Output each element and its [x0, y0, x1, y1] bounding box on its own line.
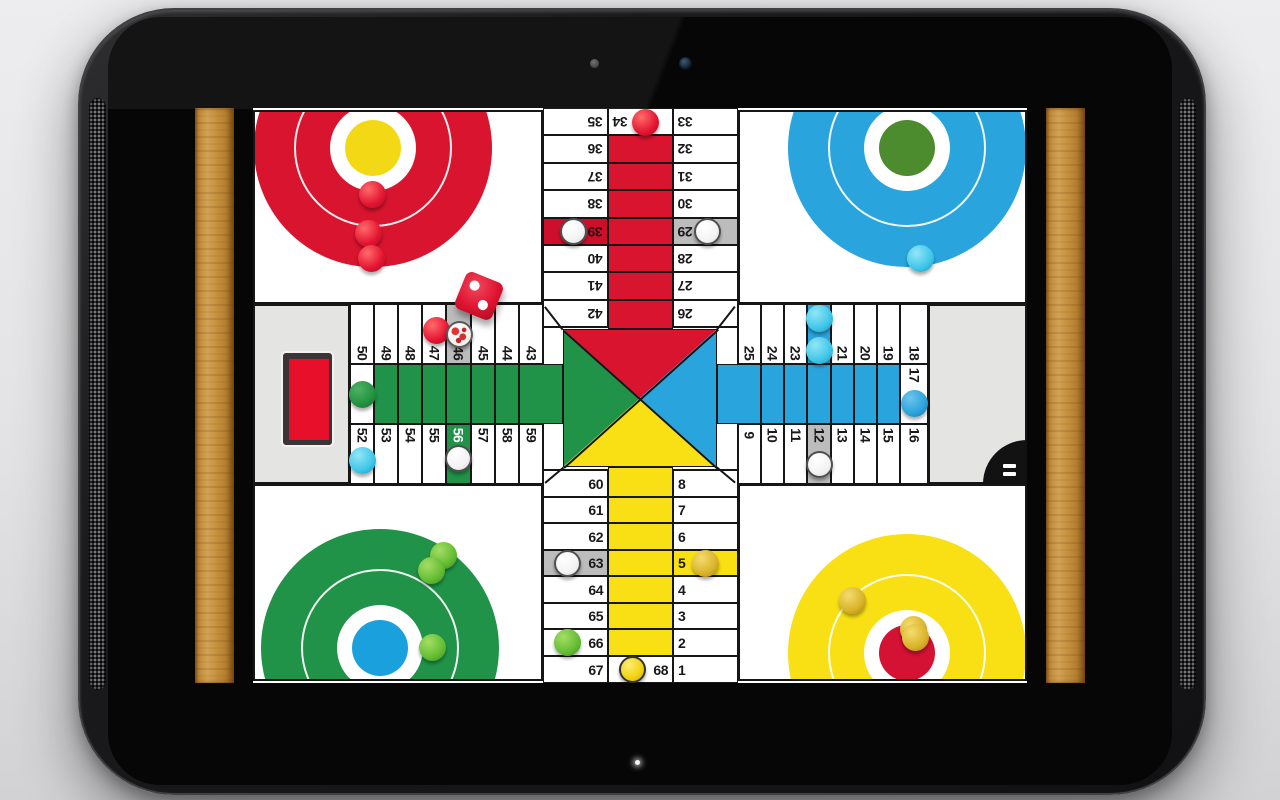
speaker-grille-right: [1179, 98, 1196, 690]
piece-red[interactable]: [358, 245, 385, 272]
cell-number: 49: [379, 346, 393, 361]
green-home-quadrant: [253, 484, 543, 681]
yellow-home-quadrant: [738, 484, 1027, 681]
piece-on-cell-12[interactable]: [806, 451, 833, 478]
cell-number: 65: [588, 609, 603, 623]
cell-number: 43: [524, 346, 538, 361]
goal-triangles: [563, 329, 717, 467]
piece-on-cell-39[interactable]: [560, 218, 587, 245]
cell-11[interactable]: 11: [784, 424, 807, 484]
blue-stretch-cell[interactable]: [807, 364, 831, 424]
red-stretch-cell[interactable]: [608, 135, 673, 163]
cell-42[interactable]: 42: [543, 300, 608, 327]
cell-41[interactable]: 41: [543, 272, 608, 300]
cell-number: 3: [678, 609, 685, 623]
cell-number: 42: [588, 307, 603, 321]
blue-stretch-cell[interactable]: [717, 364, 761, 424]
piece-gold[interactable]: [839, 587, 866, 614]
cell-48[interactable]: 48: [398, 304, 422, 364]
cell-number: 7: [678, 503, 685, 517]
cell-number: 11: [789, 428, 803, 442]
cell-8[interactable]: 8: [673, 470, 738, 497]
cell-number: 21: [836, 346, 850, 361]
cell-number: 12: [812, 428, 826, 443]
piece-on-cell-22[interactable]: [806, 337, 833, 364]
tablet-screen: 3536373839404142343332313029282726606162…: [108, 17, 1172, 785]
cell-number: 24: [766, 346, 780, 361]
cell-13[interactable]: 13: [831, 424, 854, 484]
piece-on-cell-46[interactable]: [446, 321, 473, 348]
cell-61[interactable]: 61: [543, 497, 608, 523]
cell-number: 2: [678, 636, 685, 650]
cell-number: 39: [588, 225, 603, 239]
cell-23[interactable]: 23: [784, 304, 807, 364]
piece-on-cell-22[interactable]: [806, 305, 833, 332]
cell-7[interactable]: 7: [673, 497, 738, 523]
cell-28[interactable]: 28: [673, 245, 738, 272]
yellow-stretch-cell[interactable]: [608, 497, 673, 523]
cell-54[interactable]: 54: [398, 424, 422, 484]
piece-on-cell-63[interactable]: [554, 550, 581, 577]
wood-rail-left: [195, 108, 234, 683]
cell-37[interactable]: 37: [543, 163, 608, 190]
cell-number: 34: [613, 115, 628, 129]
cell-number: 59: [524, 428, 538, 443]
cell-4[interactable]: 4: [673, 576, 738, 603]
yellow-stretch-cell[interactable]: [608, 629, 673, 656]
cell-21[interactable]: 21: [831, 304, 854, 364]
cell-number: 9: [742, 431, 756, 438]
cell-number: 62: [588, 530, 603, 544]
game-board: 3536373839404142343332313029282726606162…: [195, 108, 1085, 683]
cell-number: 47: [427, 346, 441, 361]
cell-number: 19: [882, 346, 896, 361]
notification-led-icon: [635, 760, 640, 765]
piece-cyan[interactable]: [907, 245, 934, 272]
cell-number: 50: [355, 346, 369, 361]
tablet-device: 3536373839404142343332313029282726606162…: [78, 8, 1206, 795]
cell-59[interactable]: 59: [519, 424, 543, 484]
cell-number: 31: [678, 170, 693, 184]
cell-number: 28: [678, 252, 693, 266]
cell-25[interactable]: 25: [738, 304, 761, 364]
cell-number: 17: [907, 368, 921, 383]
cell-44[interactable]: 44: [495, 304, 519, 364]
green-stretch-cell[interactable]: [398, 364, 422, 424]
cell-57[interactable]: 57: [471, 424, 495, 484]
cell-number: 10: [766, 428, 780, 443]
piece-green[interactable]: [418, 557, 445, 584]
cell-6[interactable]: 6: [673, 523, 738, 550]
cell-33[interactable]: 33: [673, 108, 738, 135]
cell-20[interactable]: 20: [854, 304, 877, 364]
piece-on-cell-52[interactable]: [349, 447, 376, 474]
cell-35[interactable]: 35: [543, 108, 608, 135]
cell-number: 8: [678, 477, 685, 491]
piece-on-cell-56[interactable]: [445, 445, 472, 472]
cell-number: 46: [451, 346, 465, 361]
cell-number: 44: [500, 346, 514, 361]
yellow-stretch-cell[interactable]: [608, 523, 673, 550]
cell-40[interactable]: 40: [543, 245, 608, 272]
cell-number: 61: [588, 503, 603, 517]
cell-number: 4: [678, 583, 685, 597]
piece-on-cell-5[interactable]: [692, 550, 719, 577]
cell-24[interactable]: 24: [761, 304, 784, 364]
cell-number: 53: [379, 428, 393, 443]
wood-rail-right: [1046, 108, 1085, 683]
red-stretch-cell[interactable]: [608, 272, 673, 300]
green-stretch-cell[interactable]: [446, 364, 471, 424]
cell-1[interactable]: 1: [673, 656, 738, 683]
cell-49[interactable]: 49: [374, 304, 398, 364]
cell-2[interactable]: 2: [673, 629, 738, 656]
yellow-stretch-cell[interactable]: [608, 576, 673, 603]
cell-number: 38: [588, 197, 603, 211]
cell-number: 18: [907, 346, 921, 361]
cell-number: 67: [588, 663, 603, 677]
cell-10[interactable]: 10: [761, 424, 784, 484]
cell-number: 58: [500, 428, 514, 443]
cell-14[interactable]: 14: [854, 424, 877, 484]
cell-number: 52: [355, 428, 369, 443]
cell-67[interactable]: 67: [543, 656, 608, 683]
speaker-grille-left: [89, 98, 106, 690]
blue-stretch-cell[interactable]: [831, 364, 854, 424]
cell-number: 5: [678, 556, 685, 570]
cell-number: 57: [476, 428, 490, 443]
cell-number: 30: [678, 197, 693, 211]
cell-number: 68: [653, 663, 668, 677]
front-camera-icon: [679, 57, 692, 70]
green-stretch-cell[interactable]: [495, 364, 519, 424]
green-stretch-cell[interactable]: [519, 364, 563, 424]
yellow-stretch-cell[interactable]: [608, 603, 673, 629]
piece-on-cell-17[interactable]: [901, 390, 928, 417]
cell-number: 27: [678, 279, 693, 293]
red-stretch-cell[interactable]: [608, 163, 673, 190]
cell-number: 37: [588, 170, 603, 184]
cell-number: 45: [476, 346, 490, 361]
cell-53[interactable]: 53: [374, 424, 398, 484]
cell-64[interactable]: 64: [543, 576, 608, 603]
piece-on-cell-29[interactable]: [694, 218, 721, 245]
green-stretch-cell[interactable]: [471, 364, 495, 424]
cell-18[interactable]: 18: [900, 304, 928, 364]
yellow-stretch-cell[interactable]: [608, 550, 673, 576]
screen-reflection: [108, 17, 1172, 109]
red-stretch-cell[interactable]: [608, 190, 673, 218]
cell-number: 60: [588, 477, 603, 491]
cell-number: 33: [678, 115, 693, 129]
blue-home-center-disc: [879, 120, 935, 176]
cell-number: 41: [588, 279, 603, 293]
cell-36[interactable]: 36: [543, 135, 608, 163]
cell-58[interactable]: 58: [495, 424, 519, 484]
cell-number: 15: [882, 428, 896, 443]
cell-31[interactable]: 31: [673, 163, 738, 190]
cell-30[interactable]: 30: [673, 190, 738, 218]
blue-stretch-cell[interactable]: [761, 364, 784, 424]
cell-number: 23: [789, 346, 803, 361]
cell-55[interactable]: 55: [422, 424, 446, 484]
red-stretch-cell[interactable]: [608, 218, 673, 245]
cell-number: 26: [678, 307, 693, 321]
cell-number: 35: [588, 115, 603, 129]
cell-number: 56: [451, 428, 465, 443]
cell-50[interactable]: 50: [350, 304, 374, 364]
cell-number: 20: [859, 346, 873, 361]
red-home-center-disc: [345, 120, 401, 176]
cell-number: 25: [743, 346, 757, 361]
piece-on-cell-66[interactable]: [554, 629, 581, 656]
cell-3[interactable]: 3: [673, 603, 738, 629]
blue-stretch-cell[interactable]: [854, 364, 877, 424]
cell-number: 40: [588, 252, 603, 266]
piece-on-cell-51[interactable]: [349, 381, 376, 408]
cell-number: 6: [678, 530, 685, 544]
cell-43[interactable]: 43: [519, 304, 543, 364]
blue-stretch-cell[interactable]: [784, 364, 807, 424]
cell-number: 32: [678, 142, 693, 156]
cell-number: 29: [678, 225, 693, 239]
cell-65[interactable]: 65: [543, 603, 608, 629]
red-stretch-cell[interactable]: [608, 245, 673, 272]
cell-number: 64: [588, 583, 603, 597]
cell-16[interactable]: 16: [900, 424, 928, 484]
cell-number: 55: [427, 428, 441, 443]
menu-bar-icon: [1003, 472, 1016, 476]
cell-15[interactable]: 15: [877, 424, 900, 484]
green-home-center-disc: [352, 620, 408, 676]
blue-stretch-cell[interactable]: [877, 364, 900, 424]
cell-number: 1: [678, 663, 685, 677]
cell-9[interactable]: 9: [738, 424, 761, 484]
cell-number: 16: [907, 428, 921, 443]
cell-38[interactable]: 38: [543, 190, 608, 218]
cell-32[interactable]: 32: [673, 135, 738, 163]
piece-on-cell-34[interactable]: [632, 109, 659, 136]
cell-number: 13: [836, 428, 850, 443]
red-stretch-cell[interactable]: [608, 300, 673, 329]
piece-green[interactable]: [419, 634, 446, 661]
light-sensor-icon: [590, 59, 599, 68]
green-stretch-cell[interactable]: [422, 364, 446, 424]
piece-on-cell-68[interactable]: [619, 656, 646, 683]
piece-on-cell-47[interactable]: [423, 317, 450, 344]
cell-27[interactable]: 27: [673, 272, 738, 300]
cell-62[interactable]: 62: [543, 523, 608, 550]
piece-gold[interactable]: [902, 624, 929, 651]
cell-number: 66: [588, 636, 603, 650]
cell-number: 36: [588, 142, 603, 156]
green-stretch-cell[interactable]: [374, 364, 398, 424]
cell-19[interactable]: 19: [877, 304, 900, 364]
yellow-stretch-cell[interactable]: [608, 467, 673, 497]
piece-red[interactable]: [359, 181, 386, 208]
die-pip: [468, 279, 480, 291]
menu-bar-icon: [1003, 464, 1016, 468]
piece-red[interactable]: [355, 220, 382, 247]
cell-number: 14: [859, 428, 873, 443]
die-pip: [477, 299, 489, 311]
dice-tray[interactable]: [283, 353, 332, 445]
cell-number: 63: [588, 556, 603, 570]
blue-home-quadrant: [738, 110, 1027, 304]
cell-number: 48: [403, 346, 417, 361]
red-home-quadrant: [253, 110, 543, 304]
cell-number: 54: [403, 428, 417, 443]
